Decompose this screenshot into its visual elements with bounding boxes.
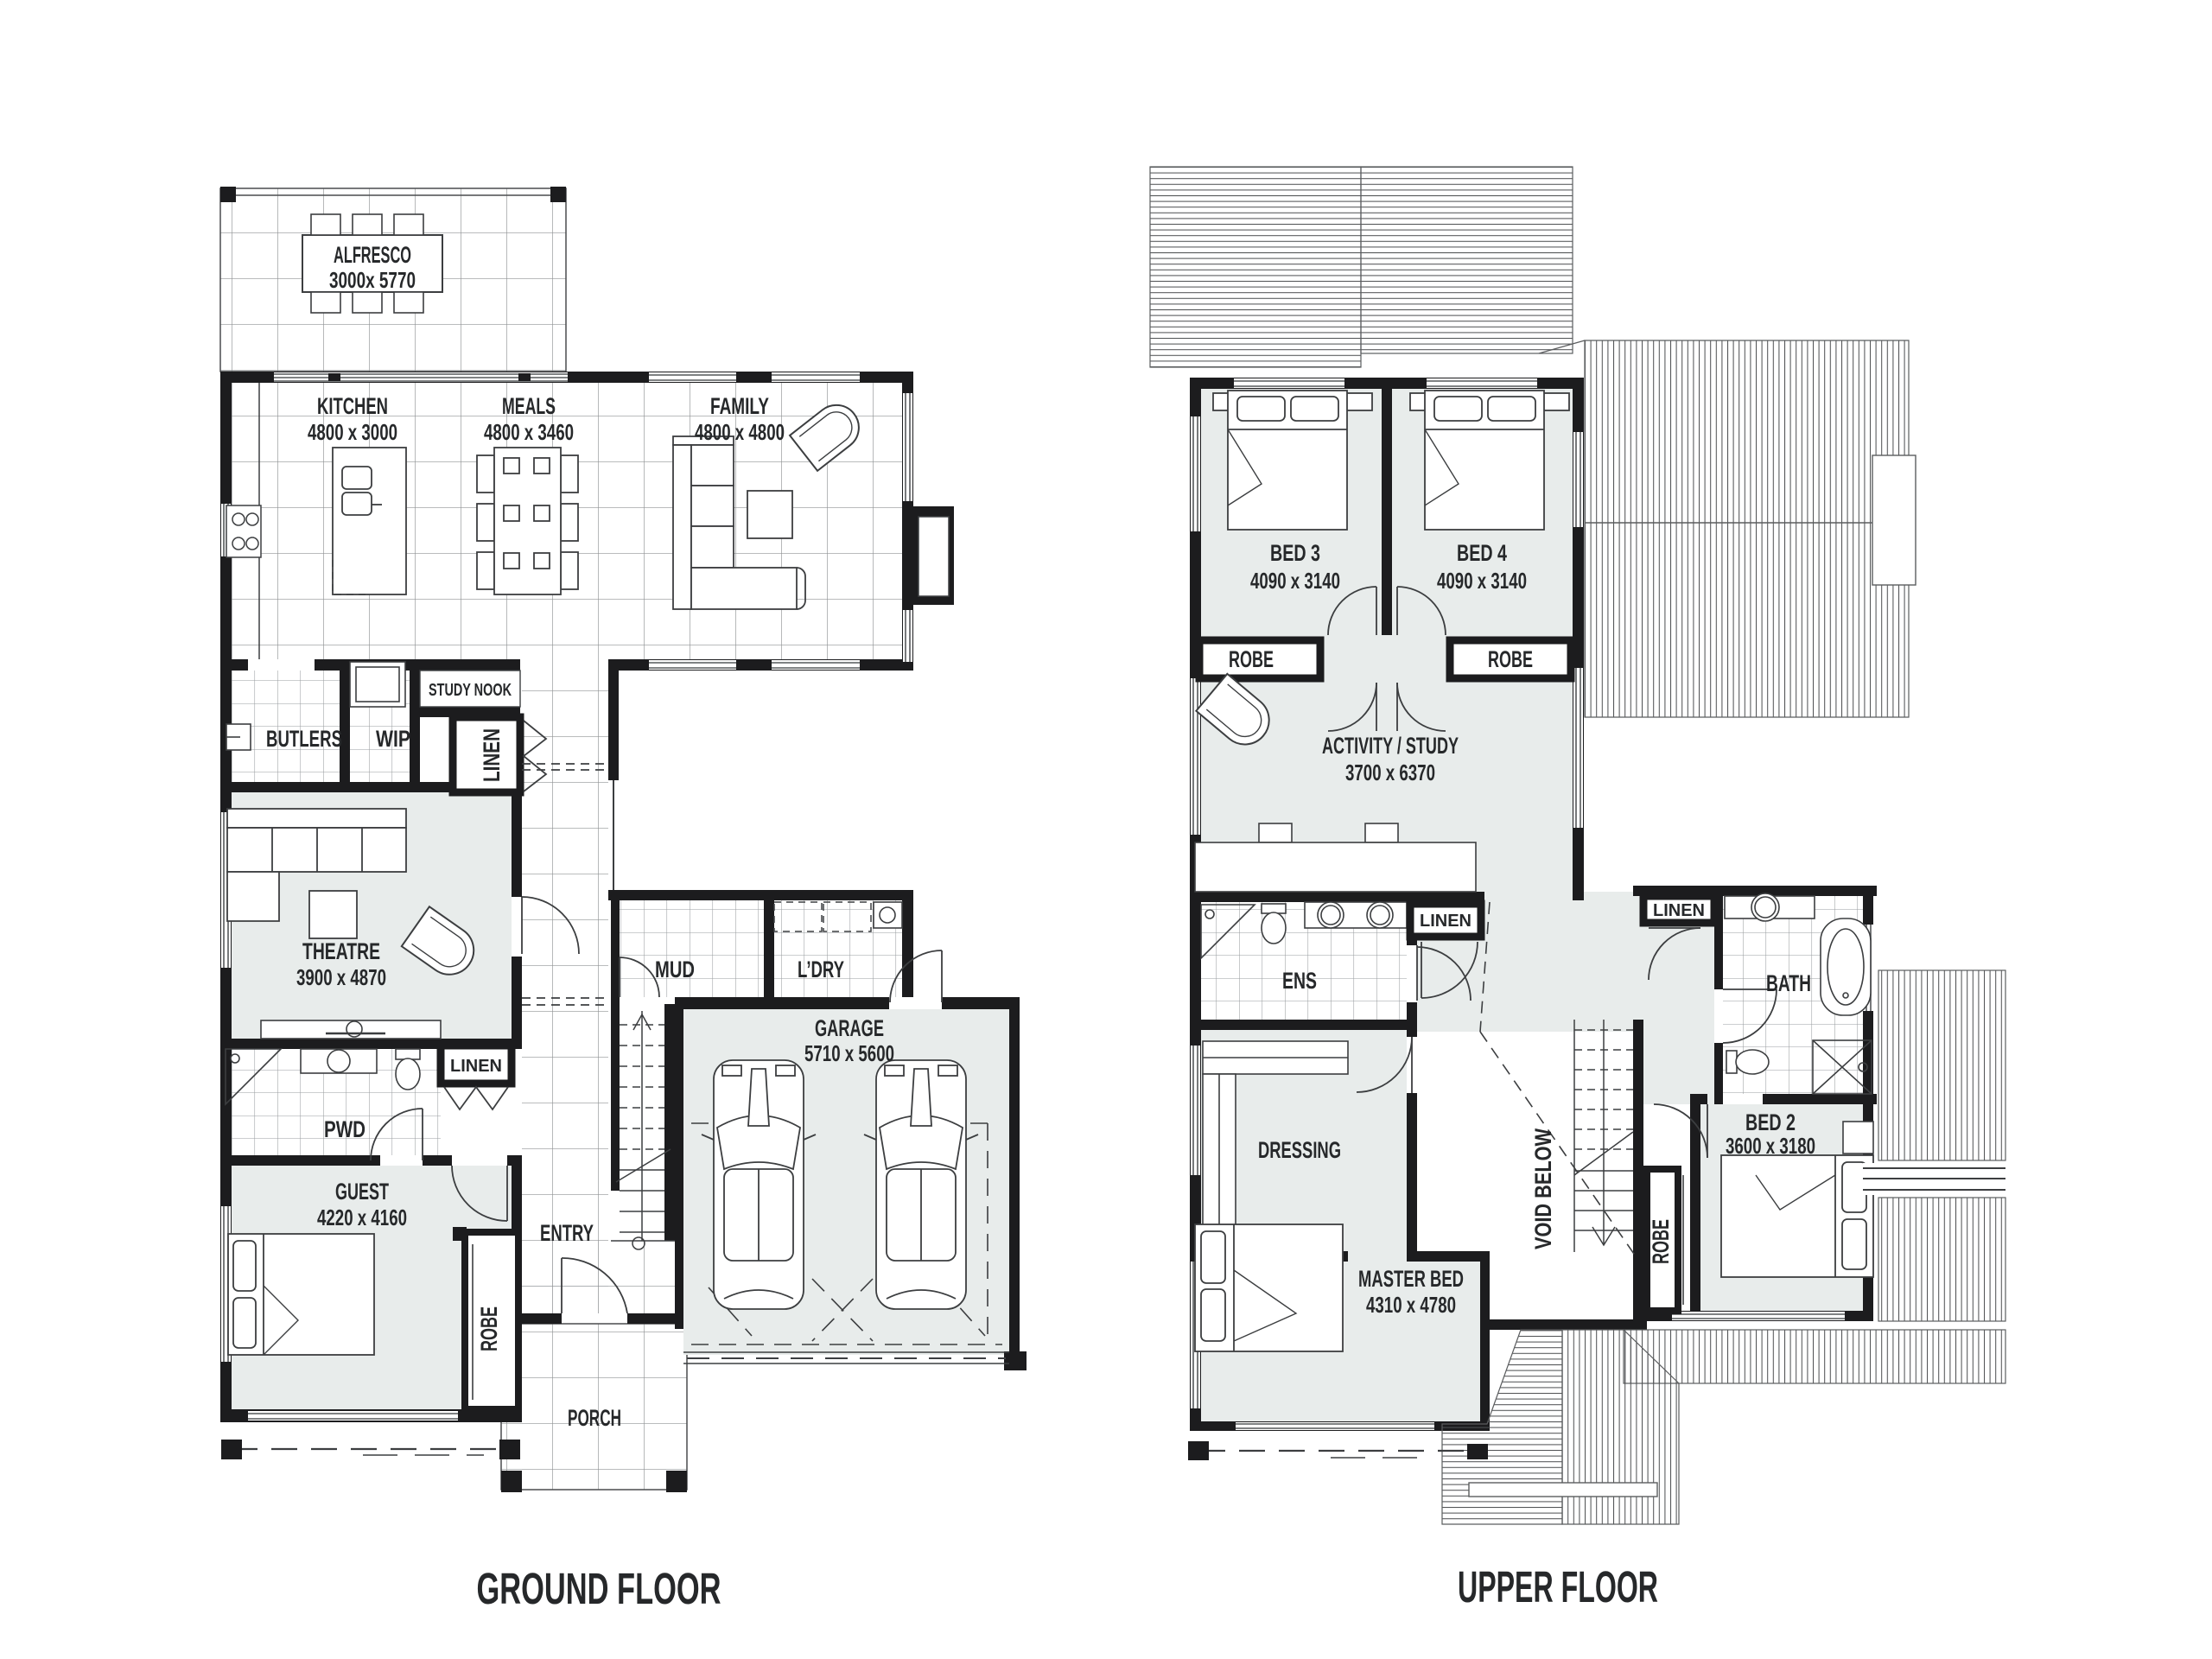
svg-text:THEATRE: THEATRE — [302, 938, 380, 964]
svg-text:KITCHEN: KITCHEN — [317, 393, 388, 419]
svg-text:4310 x 4780: 4310 x 4780 — [1366, 1292, 1456, 1318]
svg-text:GUEST: GUEST — [335, 1179, 389, 1205]
svg-text:FAMILY: FAMILY — [710, 393, 769, 419]
svg-text:PORCH: PORCH — [568, 1405, 621, 1431]
svg-text:LINEN: LINEN — [1653, 901, 1705, 920]
svg-text:BUTLERS: BUTLERS — [266, 726, 342, 752]
svg-text:GROUND FLOOR: GROUND FLOOR — [477, 1564, 721, 1613]
svg-text:BATH: BATH — [1766, 970, 1811, 996]
svg-text:ENTRY: ENTRY — [540, 1220, 594, 1246]
svg-text:ROBE: ROBE — [1648, 1219, 1674, 1264]
svg-text:MASTER BED: MASTER BED — [1358, 1266, 1464, 1292]
svg-text:LINEN: LINEN — [479, 728, 505, 782]
svg-text:4220 x 4160: 4220 x 4160 — [317, 1205, 407, 1230]
svg-text:WIP: WIP — [376, 726, 410, 752]
svg-text:4800 x 4800: 4800 x 4800 — [695, 419, 785, 445]
svg-text:LINEN: LINEN — [450, 1057, 502, 1076]
svg-text:BED 3: BED 3 — [1270, 540, 1320, 566]
svg-text:UPPER FLOOR: UPPER FLOOR — [1458, 1562, 1658, 1611]
svg-text:3900 x 4870: 3900 x 4870 — [296, 964, 386, 990]
svg-text:3000x 5770: 3000x 5770 — [329, 267, 416, 293]
svg-text:ACTIVITY / STUDY: ACTIVITY / STUDY — [1322, 733, 1459, 759]
svg-text:4800 x 3460: 4800 x 3460 — [484, 419, 574, 445]
svg-text:4090 x 3140: 4090 x 3140 — [1250, 568, 1340, 594]
svg-text:ROBE: ROBE — [476, 1306, 502, 1351]
svg-text:ROBE: ROBE — [1488, 646, 1533, 672]
svg-text:VOID BELOW: VOID BELOW — [1530, 1128, 1556, 1249]
svg-text:PWD: PWD — [324, 1116, 365, 1142]
svg-text:L’DRY: L’DRY — [798, 957, 844, 982]
svg-text:GARAGE: GARAGE — [815, 1015, 884, 1041]
svg-text:STUDY NOOK: STUDY NOOK — [429, 681, 512, 700]
svg-text:DRESSING: DRESSING — [1258, 1137, 1341, 1163]
svg-text:3700 x 6370: 3700 x 6370 — [1345, 760, 1435, 785]
svg-text:4800 x 3000: 4800 x 3000 — [308, 419, 397, 445]
svg-text:ROBE: ROBE — [1229, 646, 1274, 672]
svg-text:5710 x 5600: 5710 x 5600 — [804, 1040, 894, 1066]
svg-text:LINEN: LINEN — [1420, 912, 1471, 931]
svg-text:BED 4: BED 4 — [1457, 540, 1507, 566]
svg-text:MUD: MUD — [655, 957, 695, 982]
svg-text:4090 x 3140: 4090 x 3140 — [1437, 568, 1527, 594]
svg-text:3600 x 3180: 3600 x 3180 — [1726, 1133, 1815, 1159]
svg-text:MEALS: MEALS — [502, 393, 556, 419]
svg-text:ALFRESCO: ALFRESCO — [334, 242, 411, 268]
svg-text:ENS: ENS — [1282, 968, 1317, 994]
svg-text:BED 2: BED 2 — [1745, 1109, 1796, 1135]
